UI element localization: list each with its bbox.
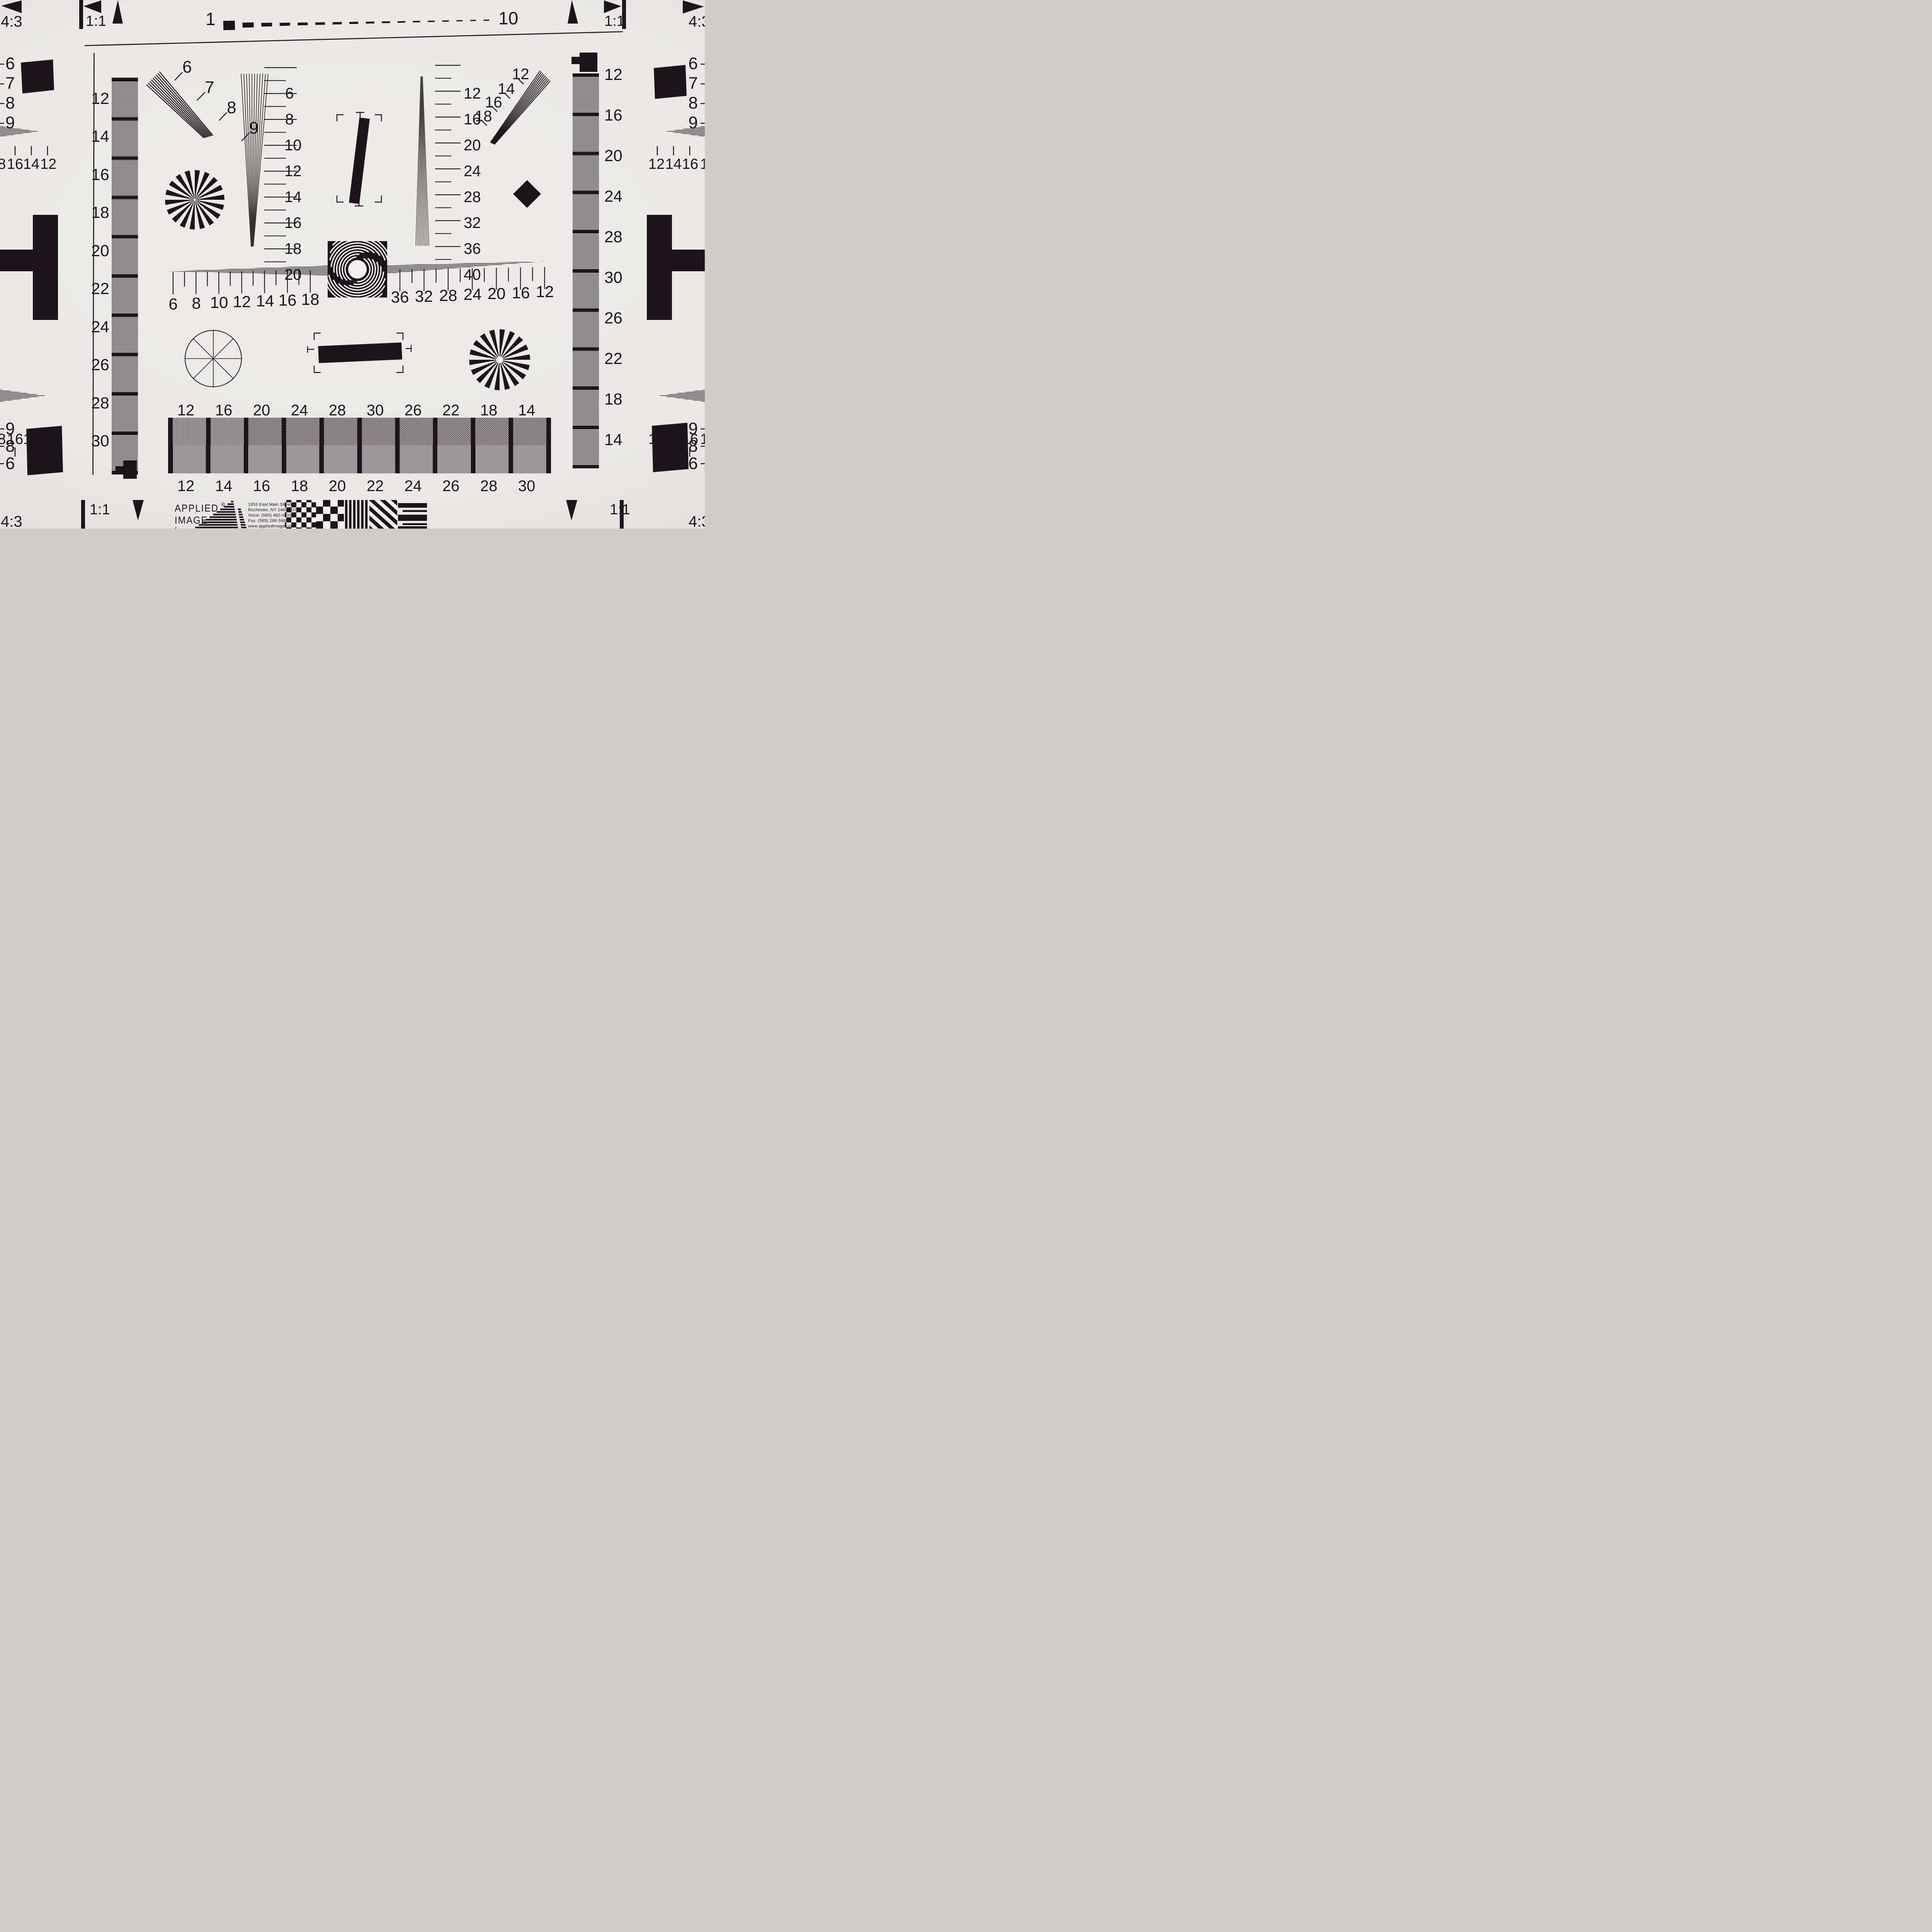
corner-square-label: 1:1 xyxy=(610,502,630,517)
edge-wedge-label: 6 xyxy=(5,55,15,72)
logo-address-line: Rochester, NY 14609 USA xyxy=(248,508,300,513)
logo-address-line: Fax: (585) 288-5989 xyxy=(248,519,288,524)
left-strip-label: 26 xyxy=(91,357,109,373)
edge-freq-label: 8 xyxy=(0,432,6,447)
h-scale-left-label: 8 xyxy=(192,295,201,311)
left-strip-label: 14 xyxy=(91,128,109,145)
h-scale-right-label: 24 xyxy=(464,286,482,303)
h-scale-left-label: 10 xyxy=(210,294,228,311)
nw-fan-label: 7 xyxy=(205,79,214,96)
center-vscale-label: 14 xyxy=(284,189,302,205)
edge-freq-label: 12 xyxy=(40,432,56,447)
edge-freq-label: 16 xyxy=(682,157,698,172)
logo-brand-inc: Inc xyxy=(175,526,188,529)
bottom-bar-bottom-label: 16 xyxy=(253,478,270,494)
h-scale-right-label: 20 xyxy=(488,286,506,302)
edge-freq-label: 12 xyxy=(40,157,56,172)
h-scale-left-label: 12 xyxy=(233,294,251,310)
right-strip-label: 24 xyxy=(604,188,622,204)
right-vscale-label: 16 xyxy=(464,112,481,127)
edge-wedge-label: 8 xyxy=(681,95,698,112)
bottom-bar-bottom-label: 26 xyxy=(442,478,460,494)
corner-ratio-label: 4:3 xyxy=(689,14,705,29)
center-vscale-label: 20 xyxy=(284,267,302,282)
right-vscale-label: 12 xyxy=(464,86,481,101)
logo-address-line: www.appliedimage.com xyxy=(248,524,294,529)
right-strip-label: 12 xyxy=(604,66,622,83)
edge-freq-label: 16 xyxy=(7,157,23,172)
edge-wedge-label: 7 xyxy=(681,75,698,92)
h-scale-right-label: 32 xyxy=(415,288,433,304)
bottom-bar-bottom-label: 20 xyxy=(329,478,346,494)
right-strip-label: 16 xyxy=(604,107,622,123)
bottom-bar-top-label: 20 xyxy=(253,403,270,418)
edge-wedge-label: 9 xyxy=(681,114,698,131)
bottom-bar-bottom-label: 14 xyxy=(215,478,233,494)
right-vscale-label: 20 xyxy=(464,138,481,153)
center-vscale-label: 18 xyxy=(284,241,302,257)
bottom-bar-top-label: 16 xyxy=(215,403,233,418)
corner-ratio-label: 4:3 xyxy=(689,514,705,529)
edge-wedge-label: 6 xyxy=(681,455,698,472)
center-vscale-label: 10 xyxy=(284,138,302,153)
bottom-bar-bottom-label: 28 xyxy=(480,478,498,494)
h-scale-left-label: 16 xyxy=(279,292,297,308)
left-strip-label: 30 xyxy=(91,433,109,449)
top-scale-end: 10 xyxy=(498,9,518,27)
right-strip-label: 30 xyxy=(604,269,622,286)
corner-ratio-label: 4:3 xyxy=(1,14,22,29)
bottom-bar-top-label: 30 xyxy=(367,403,384,418)
bottom-bar-top-label: 24 xyxy=(291,403,308,418)
edge-wedge-label: 6 xyxy=(5,455,15,472)
corner-ratio-label: 4:3 xyxy=(1,514,22,529)
bottom-bar-bottom-label: 24 xyxy=(405,478,422,494)
nw-fan-label: 8 xyxy=(227,99,236,116)
edge-freq-label: 16 xyxy=(7,432,23,447)
edge-freq-label: 16 xyxy=(682,432,698,447)
right-strip-label: 20 xyxy=(604,148,622,164)
bottom-bar-top-label: 26 xyxy=(405,403,422,418)
left-strip-label: 18 xyxy=(91,204,109,221)
left-strip-label: 24 xyxy=(91,319,109,335)
right-strip-label: 18 xyxy=(604,391,622,407)
bottom-bar-bottom-label: 22 xyxy=(367,478,384,494)
left-strip-label: 16 xyxy=(91,167,109,183)
left-strip-label: 12 xyxy=(91,90,109,107)
top-scale-start: 1 xyxy=(206,10,216,28)
ne-fan-label: 12 xyxy=(512,66,529,82)
h-scale-left-label: 14 xyxy=(256,293,274,309)
registered-mark-icon: ® xyxy=(221,502,225,507)
edge-freq-label: 1 xyxy=(700,432,705,447)
corner-square-label: 1:1 xyxy=(90,502,110,517)
bottom-bar-top-label: 14 xyxy=(518,403,536,418)
bottom-bar-bottom-label: 18 xyxy=(291,478,308,494)
logo-brand-image: IMAGE xyxy=(175,515,208,525)
center-vscale-label: 6 xyxy=(285,86,294,101)
nw-fan-label: 9 xyxy=(249,120,259,137)
h-scale-right-label: 36 xyxy=(391,289,409,305)
right-vscale-label: 36 xyxy=(464,241,481,257)
bottom-bar-top-label: 22 xyxy=(442,403,460,418)
corner-square-label: 1:1 xyxy=(604,14,625,29)
edge-freq-label: 12 xyxy=(648,432,665,447)
edge-wedge-label: 7 xyxy=(5,75,15,92)
h-scale-right-label: 28 xyxy=(439,287,457,304)
h-scale-right-label: 16 xyxy=(512,285,530,301)
center-vscale-label: 12 xyxy=(284,163,302,179)
corner-square-label: 1:1 xyxy=(86,14,106,29)
edge-freq-label: 14 xyxy=(23,157,39,172)
edge-freq-label: 12 xyxy=(648,157,665,172)
center-vscale-label: 16 xyxy=(284,215,302,231)
edge-wedge-label: 8 xyxy=(5,95,15,112)
left-strip-label: 22 xyxy=(91,281,109,297)
edge-freq-label: 14 xyxy=(665,157,682,172)
left-strip-label: 28 xyxy=(91,395,109,411)
bottom-bar-bottom-label: 30 xyxy=(518,478,536,494)
bottom-bar-bottom-label: 12 xyxy=(177,478,195,494)
logo-address-line: Voice: (585) 482-0300 xyxy=(248,513,291,519)
right-vscale-label: 24 xyxy=(464,163,481,179)
right-strip-label: 26 xyxy=(604,310,622,326)
left-strip-label: 20 xyxy=(91,243,109,259)
h-scale-left-label: 18 xyxy=(301,291,320,308)
edge-wedge-label: 6 xyxy=(681,55,698,72)
logo-address-line: 1653 East Main Street xyxy=(248,502,292,508)
center-vscale-label: 8 xyxy=(285,112,294,127)
right-vscale-label: 32 xyxy=(464,215,481,231)
h-scale-left-label: 6 xyxy=(168,296,177,312)
right-vscale-label: 28 xyxy=(464,189,481,205)
edge-freq-label: 14 xyxy=(665,432,682,447)
edge-freq-label: 14 xyxy=(23,432,39,447)
h-scale-right-label: 12 xyxy=(536,284,554,300)
bottom-bar-top-label: 18 xyxy=(480,403,498,418)
edge-freq-label: 1 xyxy=(700,157,705,172)
edge-freq-label: 8 xyxy=(0,157,6,172)
logo-brand-applied: APPLIED xyxy=(175,503,219,513)
edge-wedge-label: 9 xyxy=(5,114,15,131)
right-vscale-label: 40 xyxy=(464,267,481,282)
nw-fan-label: 6 xyxy=(182,59,192,76)
right-strip-label: 14 xyxy=(604,432,622,448)
resolution-test-chart: 4:3 1:1 1 10 1:1 4:3 4:3 1:1 1:1 4:3 6 7… xyxy=(0,0,705,529)
bottom-bar-top-label: 28 xyxy=(329,403,346,418)
bottom-bar-top-label: 12 xyxy=(177,403,195,418)
right-strip-label: 28 xyxy=(604,229,622,245)
right-strip-label: 22 xyxy=(604,350,622,367)
